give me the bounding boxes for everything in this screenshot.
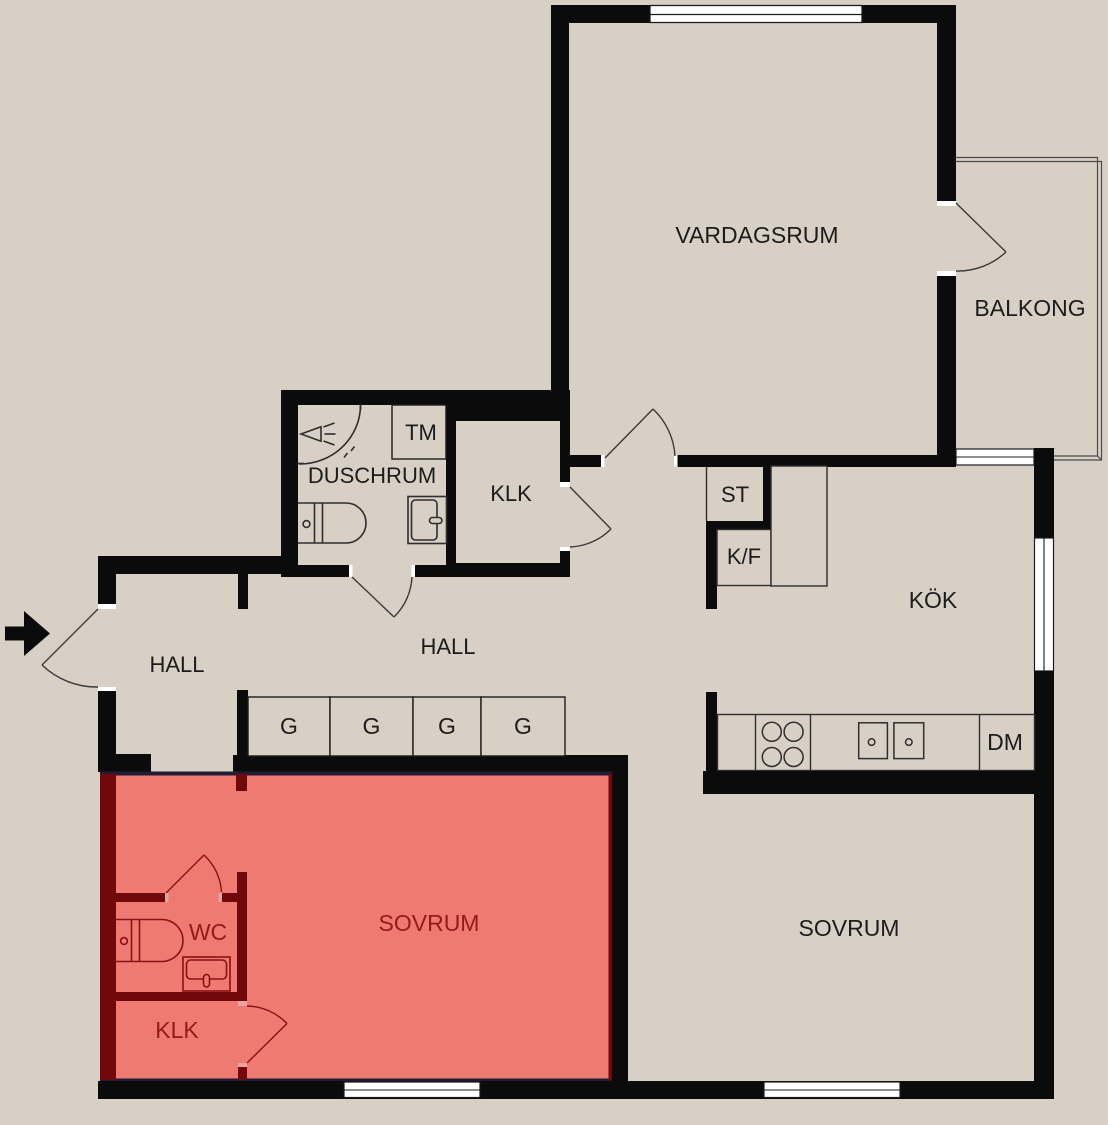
svg-text:G: G — [514, 713, 532, 739]
svg-text:G: G — [363, 713, 381, 739]
svg-text:KÖK: KÖK — [909, 587, 958, 613]
svg-text:TM: TM — [405, 420, 437, 445]
svg-text:G: G — [438, 713, 456, 739]
svg-text:HALL: HALL — [420, 634, 475, 659]
svg-text:K/F: K/F — [727, 544, 761, 569]
svg-text:ST: ST — [721, 482, 749, 507]
svg-text:WC: WC — [189, 919, 227, 945]
svg-text:BALKONG: BALKONG — [974, 295, 1085, 321]
svg-text:G: G — [280, 713, 298, 739]
svg-text:SOVRUM: SOVRUM — [379, 910, 480, 936]
svg-text:DUSCHRUM: DUSCHRUM — [308, 463, 436, 488]
svg-text:SOVRUM: SOVRUM — [799, 915, 900, 941]
svg-text:VARDAGSRUM: VARDAGSRUM — [675, 222, 838, 248]
svg-text:DM: DM — [987, 729, 1023, 755]
svg-text:KLK: KLK — [155, 1017, 199, 1043]
svg-text:KLK: KLK — [490, 481, 532, 506]
svg-text:HALL: HALL — [149, 652, 204, 677]
